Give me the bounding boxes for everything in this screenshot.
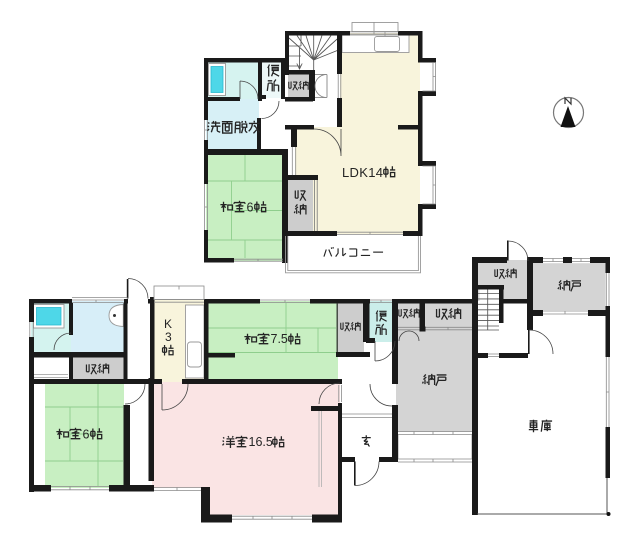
svg-text:7.5: 7.5 — [271, 332, 288, 346]
svg-text:3: 3 — [165, 330, 172, 344]
svg-text:6: 6 — [247, 201, 254, 215]
svg-text:16.5: 16.5 — [249, 435, 273, 449]
svg-text:LDK14: LDK14 — [342, 165, 383, 180]
svg-text:6: 6 — [83, 428, 90, 442]
svg-text:K: K — [164, 317, 172, 331]
